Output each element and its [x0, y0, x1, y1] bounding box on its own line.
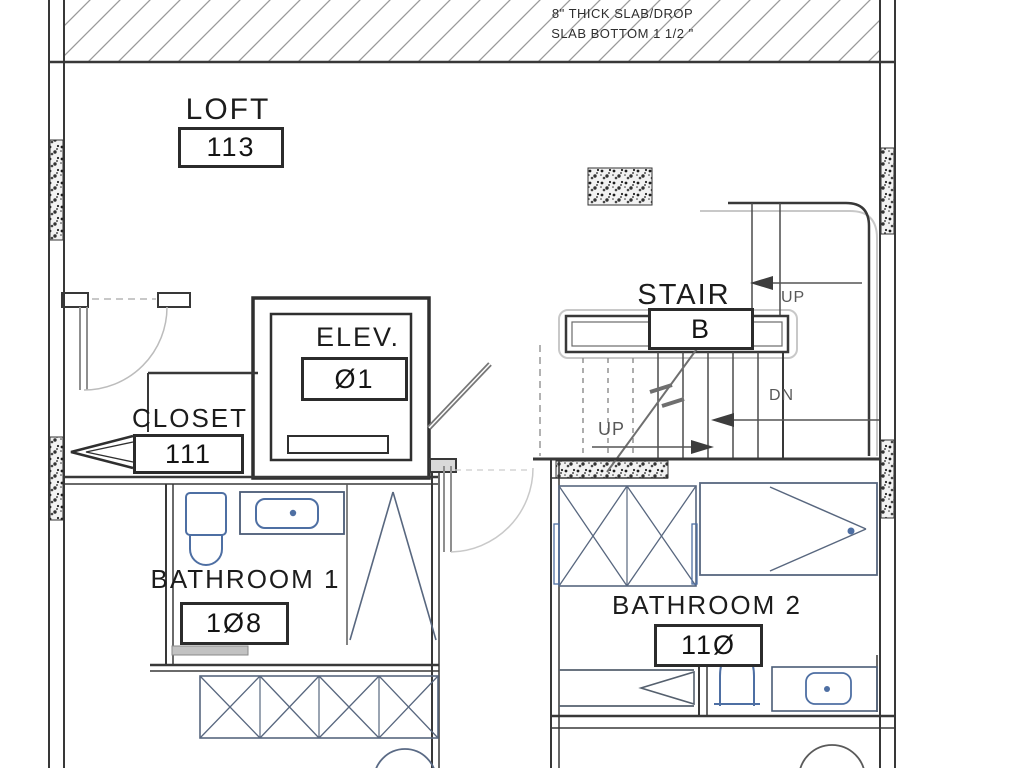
up-annotation-top: UP	[781, 289, 805, 307]
slab-note: 8" THICK SLAB/DROP SLAB BOTTOM 1 1/2 "	[500, 4, 745, 43]
stair-number-box: B	[648, 308, 754, 350]
closet-label: CLOSET	[120, 403, 260, 434]
slab-hatch-band	[48, 0, 896, 62]
bathroom2-label: BATHROOM 2	[593, 590, 821, 621]
down-annotation: DN	[769, 387, 794, 405]
closet-number-box: 111	[133, 434, 244, 474]
loft-number-box: 113	[178, 127, 284, 168]
bathroom2-number-box: 11Ø	[654, 624, 763, 667]
up-annotation-mid: UP	[598, 419, 625, 440]
bathroom1-label: BATHROOM 1	[128, 564, 363, 595]
slab-note-line2: SLAB BOTTOM 1 1/2 "	[500, 24, 745, 44]
loft-door	[62, 293, 190, 390]
plan-linework	[0, 0, 1024, 768]
elevator-label: ELEV.	[288, 322, 428, 353]
loft-label: LOFT	[158, 93, 298, 127]
corridor-door	[430, 459, 533, 552]
bathroom1-number-box: 1Ø8	[180, 602, 289, 645]
floor-plan: 8" THICK SLAB/DROP SLAB BOTTOM 1 1/2 " L…	[0, 0, 1024, 768]
elevator-number-box: Ø1	[301, 357, 408, 401]
slab-note-line1: 8" THICK SLAB/DROP	[500, 4, 745, 24]
